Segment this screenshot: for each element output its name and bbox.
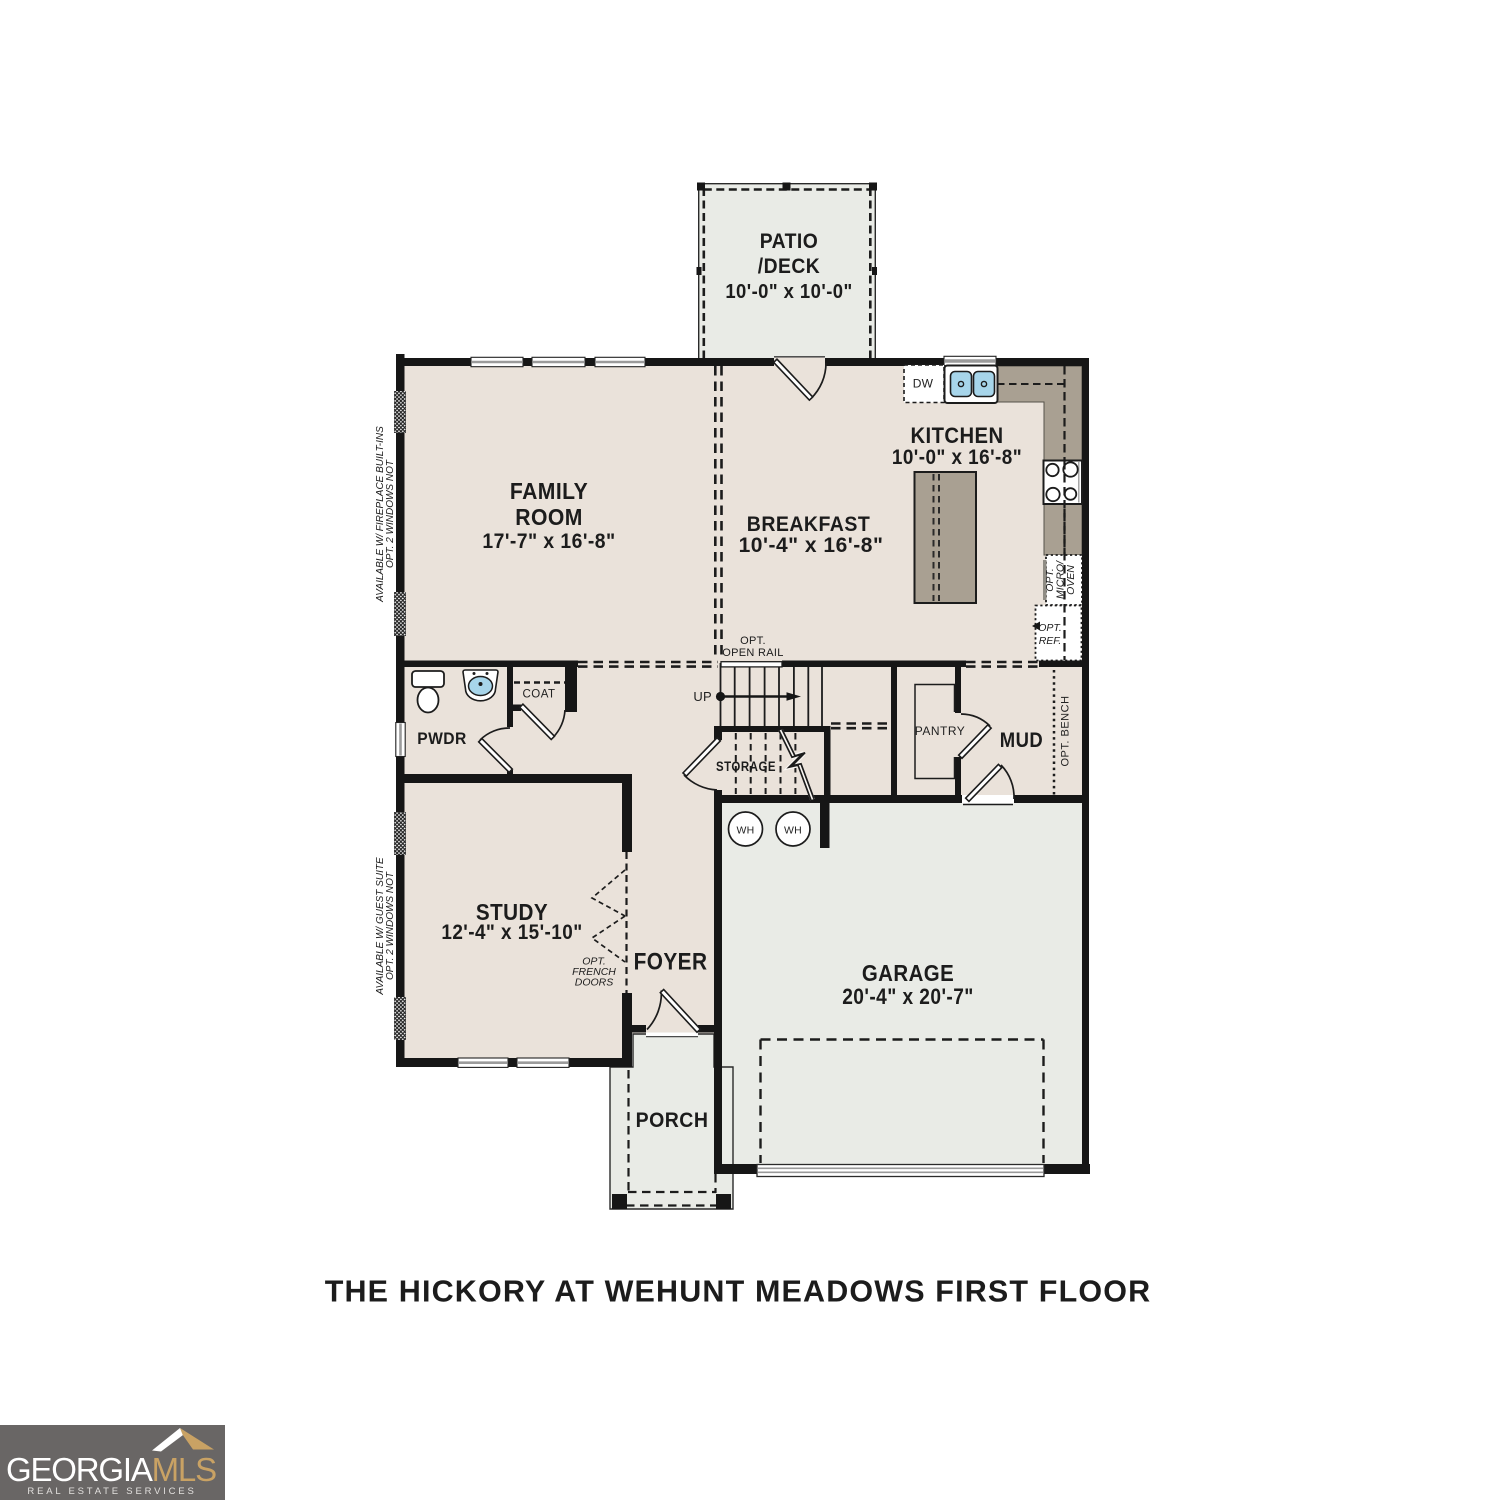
svg-text:WH: WH xyxy=(736,825,754,837)
svg-text:MUD: MUD xyxy=(1000,729,1043,752)
svg-text:OPT.: OPT. xyxy=(740,635,766,647)
svg-text:WH: WH xyxy=(784,825,802,837)
svg-text:PANTRY: PANTRY xyxy=(915,724,966,738)
svg-text:GARAGE: GARAGE xyxy=(862,960,954,987)
svg-text:BREAKFAST: BREAKFAST xyxy=(747,513,871,536)
svg-text:STORAGE: STORAGE xyxy=(716,759,776,774)
svg-text:REF.: REF. xyxy=(1039,635,1062,647)
svg-text:OPT.: OPT. xyxy=(1038,622,1062,634)
svg-text:20'-4" x 20'-7": 20'-4" x 20'-7" xyxy=(842,985,974,1010)
svg-text:PWDR: PWDR xyxy=(417,729,467,748)
svg-text:12'-4" x 15'-10": 12'-4" x 15'-10" xyxy=(441,921,582,944)
svg-text:/DECK: /DECK xyxy=(758,254,820,278)
svg-text:PATIO: PATIO xyxy=(760,229,818,253)
svg-text:THE HICKORY AT WEHUNT MEADOWS: THE HICKORY AT WEHUNT MEADOWS FIRST FLOO… xyxy=(325,1275,1152,1309)
svg-text:DOORS: DOORS xyxy=(575,977,614,989)
svg-text:OPEN RAIL: OPEN RAIL xyxy=(722,647,783,659)
svg-text:10'-4" x 16'-8": 10'-4" x 16'-8" xyxy=(739,534,884,557)
svg-text:KITCHEN: KITCHEN xyxy=(910,423,1003,448)
svg-text:OPT. 2 WINDOWS NOT: OPT. 2 WINDOWS NOT xyxy=(385,871,396,980)
svg-text:17'-7" x 16'-8": 17'-7" x 16'-8" xyxy=(482,529,615,553)
svg-text:PORCH: PORCH xyxy=(636,1109,709,1132)
svg-text:OPT. 2 WINDOWS NOT: OPT. 2 WINDOWS NOT xyxy=(385,459,396,568)
svg-text:10'-0" x 10'-0": 10'-0" x 10'-0" xyxy=(725,280,852,303)
svg-text:OVEN: OVEN xyxy=(1065,565,1077,595)
svg-text:COAT: COAT xyxy=(522,689,555,701)
svg-text:OPT. BENCH: OPT. BENCH xyxy=(1060,695,1072,766)
svg-text:REAL ESTATE SERVICES: REAL ESTATE SERVICES xyxy=(27,1486,196,1497)
svg-text:ROOM: ROOM xyxy=(515,504,583,530)
svg-text:UP: UP xyxy=(693,689,712,704)
svg-text:GEORGIAMLS: GEORGIAMLS xyxy=(6,1451,216,1488)
svg-text:10'-0" x 16'-8": 10'-0" x 16'-8" xyxy=(892,446,1022,469)
svg-text:FOYER: FOYER xyxy=(634,947,708,975)
svg-text:FAMILY: FAMILY xyxy=(510,478,588,504)
svg-text:DW: DW xyxy=(913,377,934,391)
